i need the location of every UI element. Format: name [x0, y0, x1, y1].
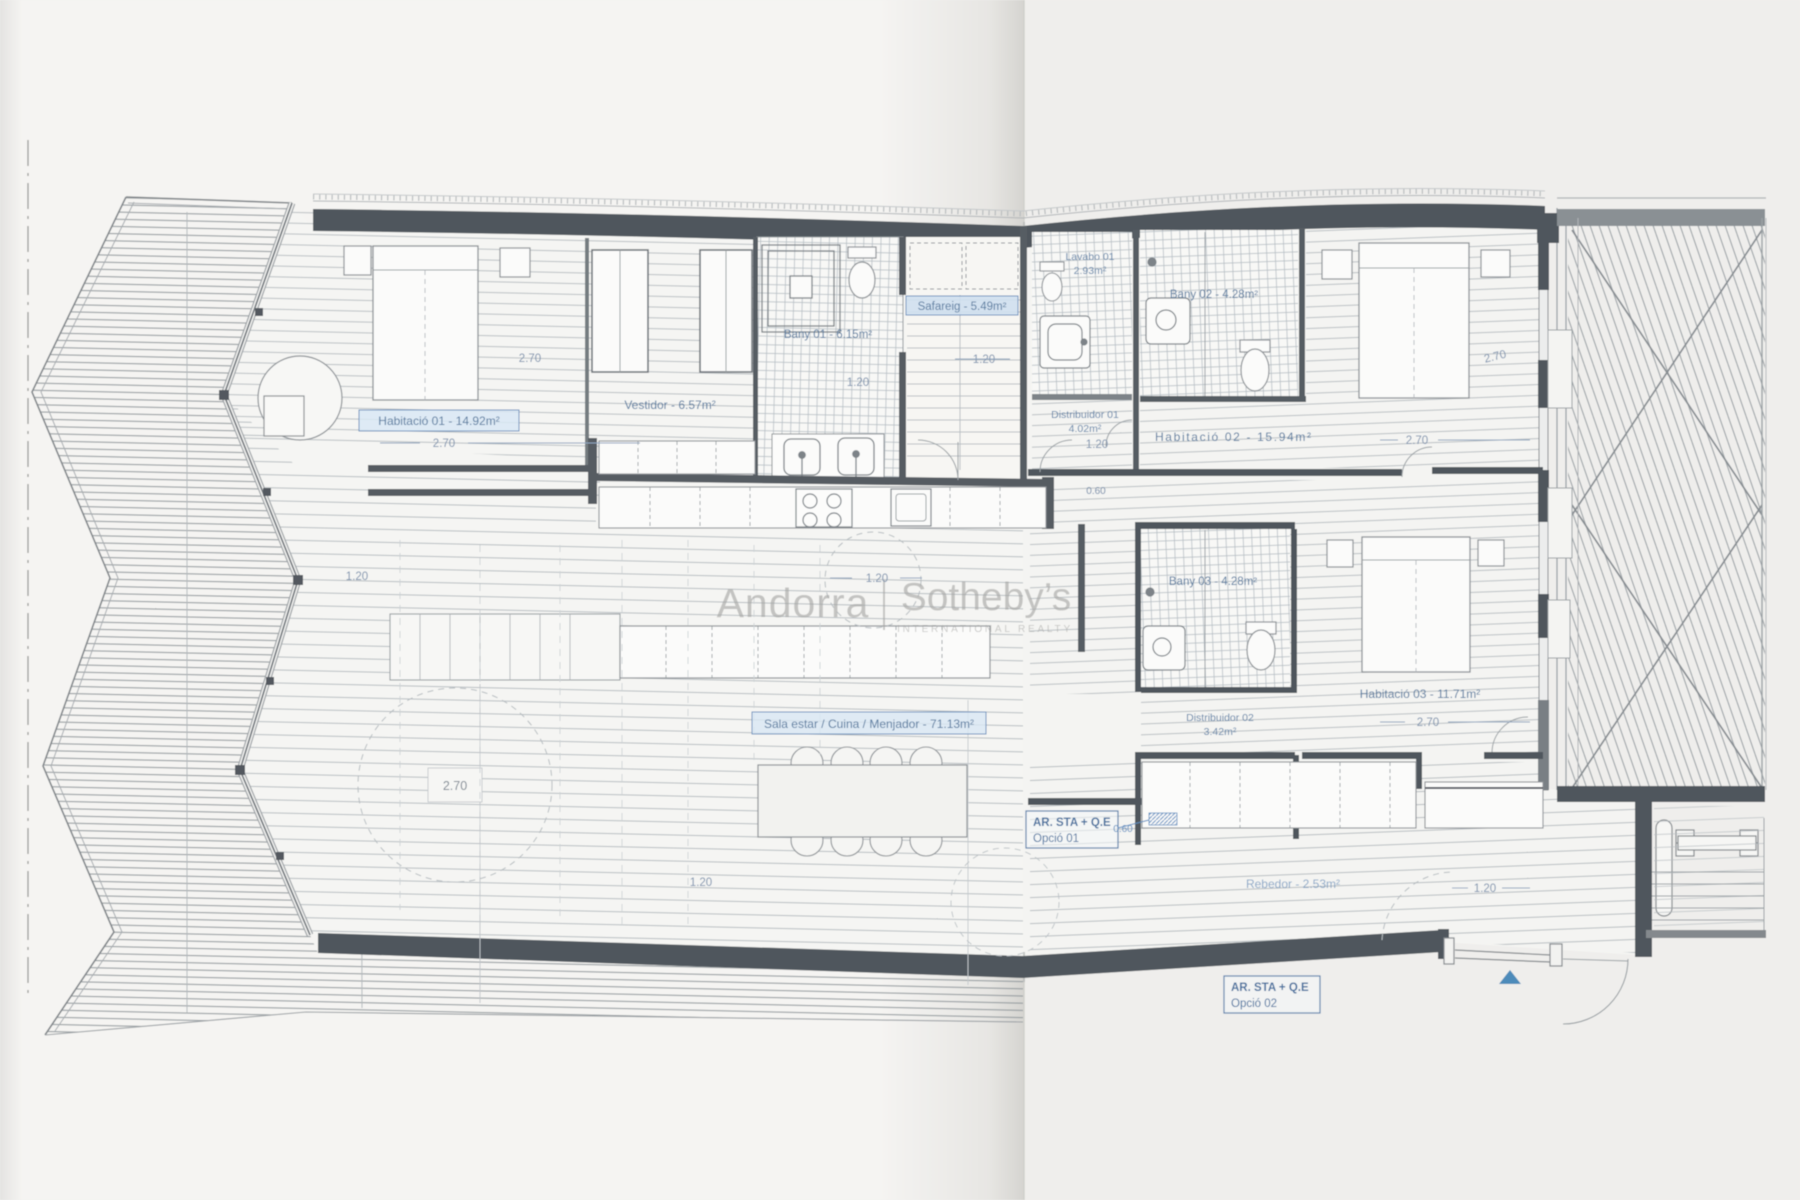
svg-text:AR. STA + Q.E: AR. STA + Q.E	[1231, 982, 1309, 994]
svg-text:Habitació 01 - 14.92m²: Habitació 01 - 14.92m²	[378, 414, 499, 428]
svg-text:Opció 02: Opció 02	[1231, 998, 1277, 1010]
svg-text:Opció 01: Opció 01	[1033, 833, 1079, 845]
svg-text:Distribuidor 01: Distribuidor 01	[1051, 409, 1119, 421]
svg-text:Safareig - 5.49m²: Safareig - 5.49m²	[918, 301, 1007, 313]
svg-text:1.20: 1.20	[1086, 439, 1108, 451]
svg-text:Bany 01 - 6.15m²: Bany 01 - 6.15m²	[784, 329, 872, 341]
svg-text:Vestidor - 6.57m²: Vestidor - 6.57m²	[624, 398, 715, 412]
svg-text:Bany 03 - 4.28m²: Bany 03 - 4.28m²	[1169, 576, 1257, 588]
svg-text:0.60: 0.60	[1113, 824, 1133, 835]
svg-text:4.02m²: 4.02m²	[1069, 423, 1102, 435]
svg-text:Sala estar / Cuina / Menjador: Sala estar / Cuina / Menjador - 71.13m²	[764, 717, 974, 731]
svg-text:Distribuidor 02: Distribuidor 02	[1186, 712, 1254, 724]
svg-text:2.70: 2.70	[443, 779, 467, 793]
svg-text:Bany 02 - 4.28m²: Bany 02 - 4.28m²	[1170, 289, 1258, 301]
svg-text:1.20: 1.20	[973, 354, 995, 366]
svg-text:AR. STA + Q.E: AR. STA + Q.E	[1033, 817, 1111, 829]
svg-text:1.20: 1.20	[690, 877, 712, 889]
svg-text:Andorra: Andorra	[717, 580, 870, 626]
svg-text:1.20: 1.20	[847, 377, 869, 389]
svg-text:3.42m²: 3.42m²	[1204, 726, 1237, 738]
svg-text:Sotheby’s: Sotheby’s	[901, 576, 1072, 619]
svg-text:1.20: 1.20	[346, 571, 368, 583]
svg-text:2.70: 2.70	[1417, 717, 1439, 729]
svg-text:2.70: 2.70	[1406, 435, 1428, 447]
svg-text:Rebedor - 2.53m²: Rebedor - 2.53m²	[1246, 877, 1340, 891]
svg-text:0.60: 0.60	[1086, 486, 1106, 497]
svg-text:1.20: 1.20	[1474, 883, 1496, 895]
svg-text:2.70: 2.70	[519, 353, 541, 365]
svg-text:Habitació 02 - 15.94m²: Habitació 02 - 15.94m²	[1155, 430, 1311, 444]
svg-text:INTERNATIONAL REALTY: INTERNATIONAL REALTY	[897, 624, 1073, 635]
svg-text:1.20: 1.20	[866, 573, 888, 585]
svg-text:2.93m²: 2.93m²	[1074, 265, 1107, 277]
svg-text:2.70: 2.70	[433, 438, 455, 450]
svg-text:Lavabo 01: Lavabo 01	[1065, 251, 1114, 263]
svg-text:Habitació 03 - 11.71m²: Habitació 03 - 11.71m²	[1360, 687, 1481, 701]
